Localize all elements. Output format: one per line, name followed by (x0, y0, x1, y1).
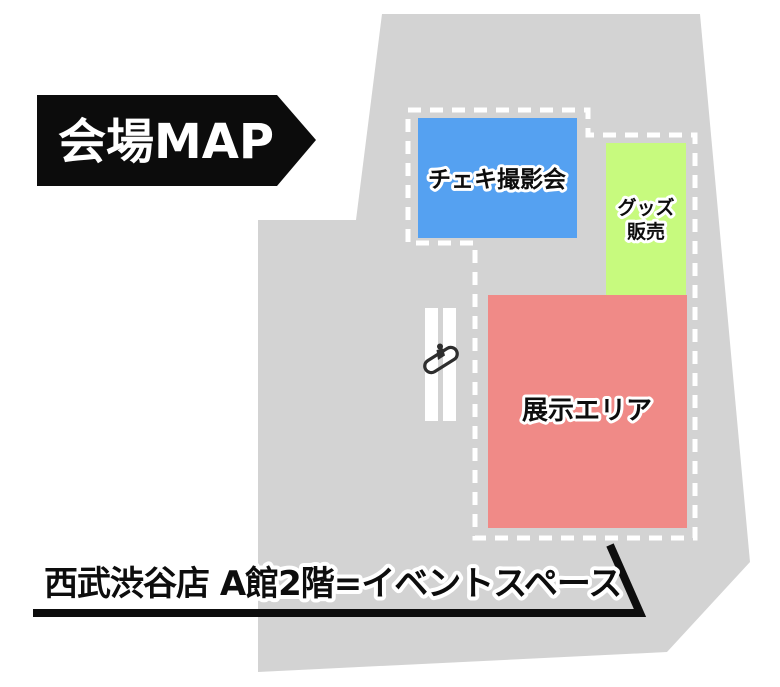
exhibition-area-label: 展示エリア (522, 396, 652, 426)
goods-area-label-line2: 販売 (627, 220, 665, 243)
venue-map: チェキ撮影会 グッズ 販売 展示エリア 会場MAP 西武渋谷店 A館2階=イベン… (0, 0, 780, 687)
cheki-photo-area-label: チェキ撮影会 (428, 166, 566, 193)
escalator-lane-left (425, 308, 438, 421)
goods-area-label-line1: グッズ (617, 196, 674, 219)
map-title: 会場MAP (58, 114, 274, 170)
goods-area (606, 143, 686, 295)
venue-location-label: 西武渋谷店 A館2階=イベントスペース (44, 564, 621, 604)
venue-map-canvas: チェキ撮影会 グッズ 販売 展示エリア 会場MAP 西武渋谷店 A館2階=イベン… (0, 0, 780, 687)
